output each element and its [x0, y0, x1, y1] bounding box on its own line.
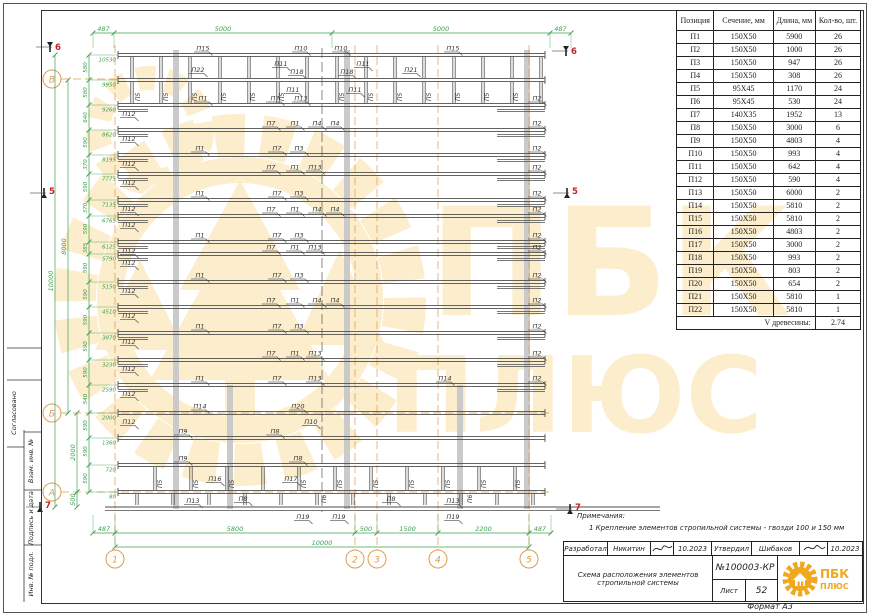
table-row: П17150X5030002 — [677, 239, 861, 252]
table-cell: 4 — [815, 135, 860, 148]
table-cell: 5900 — [773, 31, 815, 44]
table-cell: 1000 — [773, 44, 815, 57]
table-footer-row: V древесины:2.74 — [677, 317, 861, 330]
table-cell: 150X50 — [714, 278, 773, 291]
table-row: П11150X506424 — [677, 161, 861, 174]
table-cell: 2 — [815, 252, 860, 265]
table-row: П13150X5060002 — [677, 187, 861, 200]
table-cell: П19 — [677, 265, 714, 278]
table-cell: 6 — [815, 122, 860, 135]
table-cell: 1952 — [773, 109, 815, 122]
table-row: П14150X5058102 — [677, 200, 861, 213]
table-cell: 13 — [815, 109, 860, 122]
table-cell: 4 — [815, 148, 860, 161]
table-row: П18150X509932 — [677, 252, 861, 265]
wood-volume-value: 2.74 — [815, 317, 860, 330]
table-cell: 150X50 — [714, 122, 773, 135]
table-cell: П16 — [677, 226, 714, 239]
table-cell: 1170 — [773, 83, 815, 96]
table-cell: П8 — [677, 122, 714, 135]
table-cell: 2 — [815, 200, 860, 213]
stamp-label: Взам. инв. № — [27, 439, 35, 483]
table-cell: П15 — [677, 213, 714, 226]
table-row: П12150X505904 — [677, 174, 861, 187]
table-cell: 150X50 — [714, 213, 773, 226]
table-cell: 150X50 — [714, 200, 773, 213]
positions-table-header: ПозицияСечение, ммДлина, ммКол-во, шт. — [677, 11, 861, 31]
table-cell: П7 — [677, 109, 714, 122]
table-row: П695X4553024 — [677, 96, 861, 109]
table-cell: 26 — [815, 31, 860, 44]
stamp-label: Подпись и дата — [27, 491, 35, 545]
table-cell: 24 — [815, 83, 860, 96]
table-cell: 6000 — [773, 187, 815, 200]
table-row: П20150X506542 — [677, 278, 861, 291]
table-cell: 4803 — [773, 135, 815, 148]
table-cell: 947 — [773, 57, 815, 70]
table-cell: 3000 — [773, 122, 815, 135]
table-row: П4150X5030826 — [677, 70, 861, 83]
stamp-label: Инв. № подл. — [27, 552, 35, 597]
table-cell: 150X50 — [714, 252, 773, 265]
table-row: П9150X5048034 — [677, 135, 861, 148]
table-cell: 308 — [773, 70, 815, 83]
table-cell: 530 — [773, 96, 815, 109]
table-cell: П17 — [677, 239, 714, 252]
format-label: Формат А3 — [720, 602, 820, 611]
wood-volume-label: V древесины: — [677, 317, 816, 330]
table-cell: 2 — [815, 226, 860, 239]
table-cell: 150X50 — [714, 226, 773, 239]
table-cell: 5810 — [773, 213, 815, 226]
table-cell: 26 — [815, 44, 860, 57]
table-cell: 2 — [815, 278, 860, 291]
table-row: П19150X508032 — [677, 265, 861, 278]
table-row: П3150X5094726 — [677, 57, 861, 70]
table-cell: 150X50 — [714, 304, 773, 317]
table-cell: 150X50 — [714, 70, 773, 83]
table-cell: П21 — [677, 291, 714, 304]
table-row: П595X45117024 — [677, 83, 861, 96]
table-cell: 150X50 — [714, 148, 773, 161]
table-row: П1150X50590026 — [677, 31, 861, 44]
table-cell: П4 — [677, 70, 714, 83]
column-header: Длина, мм — [773, 11, 815, 31]
table-cell: П14 — [677, 200, 714, 213]
table-cell: 5810 — [773, 200, 815, 213]
table-row: П16150X5048032 — [677, 226, 861, 239]
table-cell: П13 — [677, 187, 714, 200]
table-cell: 2 — [815, 213, 860, 226]
table-cell: 150X50 — [714, 174, 773, 187]
table-row: П8150X5030006 — [677, 122, 861, 135]
table-cell: 1 — [815, 304, 860, 317]
table-row: П7140X35195213 — [677, 109, 861, 122]
table-cell: 654 — [773, 278, 815, 291]
table-cell: 590 — [773, 174, 815, 187]
table-cell: 2 — [815, 265, 860, 278]
table-cell: П22 — [677, 304, 714, 317]
left-margin-stamps: СогласованоВзам. инв. №Подпись и датаИнв… — [0, 0, 60, 615]
table-cell: П9 — [677, 135, 714, 148]
table-row: П21150X5058101 — [677, 291, 861, 304]
table-row: П22150X5058101 — [677, 304, 861, 317]
table-cell: П11 — [677, 161, 714, 174]
table-cell: П5 — [677, 83, 714, 96]
table-cell: 150X50 — [714, 265, 773, 278]
table-row: П15150X5058102 — [677, 213, 861, 226]
stamp-label: Согласовано — [10, 391, 18, 435]
table-cell: 26 — [815, 70, 860, 83]
table-cell: 150X50 — [714, 31, 773, 44]
table-cell: 4 — [815, 174, 860, 187]
table-cell: 150X50 — [714, 57, 773, 70]
notes-item: 1 Крепление элементов стропильной систем… — [589, 524, 844, 532]
table-row: П10150X509934 — [677, 148, 861, 161]
table-cell: 140X35 — [714, 109, 773, 122]
drawing-sheet: ПБКПЛЮС СогласованоВзам. инв. №Подпись и… — [0, 0, 870, 615]
table-cell: 150X50 — [714, 135, 773, 148]
table-cell: 95X45 — [714, 96, 773, 109]
table-cell: 150X50 — [714, 44, 773, 57]
column-header: Кол-во, шт. — [815, 11, 860, 31]
table-cell: 150X50 — [714, 291, 773, 304]
table-cell: 2 — [815, 187, 860, 200]
positions-table: ПозицияСечение, ммДлина, ммКол-во, шт. П… — [676, 10, 861, 330]
table-cell: 150X50 — [714, 187, 773, 200]
table-cell: П12 — [677, 174, 714, 187]
table-cell: 5810 — [773, 291, 815, 304]
table-cell: 993 — [773, 252, 815, 265]
table-cell: 24 — [815, 96, 860, 109]
table-cell: 1 — [815, 291, 860, 304]
table-cell: П10 — [677, 148, 714, 161]
table-cell: П3 — [677, 57, 714, 70]
table-cell: П1 — [677, 31, 714, 44]
table-cell: 150X50 — [714, 161, 773, 174]
table-cell: П20 — [677, 278, 714, 291]
notes-header: Примечания: — [577, 512, 625, 520]
table-cell: 2 — [815, 239, 860, 252]
table-cell: П2 — [677, 44, 714, 57]
column-header: Сечение, мм — [714, 11, 773, 31]
table-cell: 803 — [773, 265, 815, 278]
table-cell: П6 — [677, 96, 714, 109]
table-cell: 3000 — [773, 239, 815, 252]
table-cell: 642 — [773, 161, 815, 174]
column-header: Позиция — [677, 11, 714, 31]
table-cell: П18 — [677, 252, 714, 265]
table-row: П2150X50100026 — [677, 44, 861, 57]
table-cell: 4 — [815, 161, 860, 174]
table-cell: 5810 — [773, 304, 815, 317]
table-cell: 95X45 — [714, 83, 773, 96]
table-cell: 993 — [773, 148, 815, 161]
table-cell: 150X50 — [714, 239, 773, 252]
table-cell: 26 — [815, 57, 860, 70]
table-cell: 4803 — [773, 226, 815, 239]
